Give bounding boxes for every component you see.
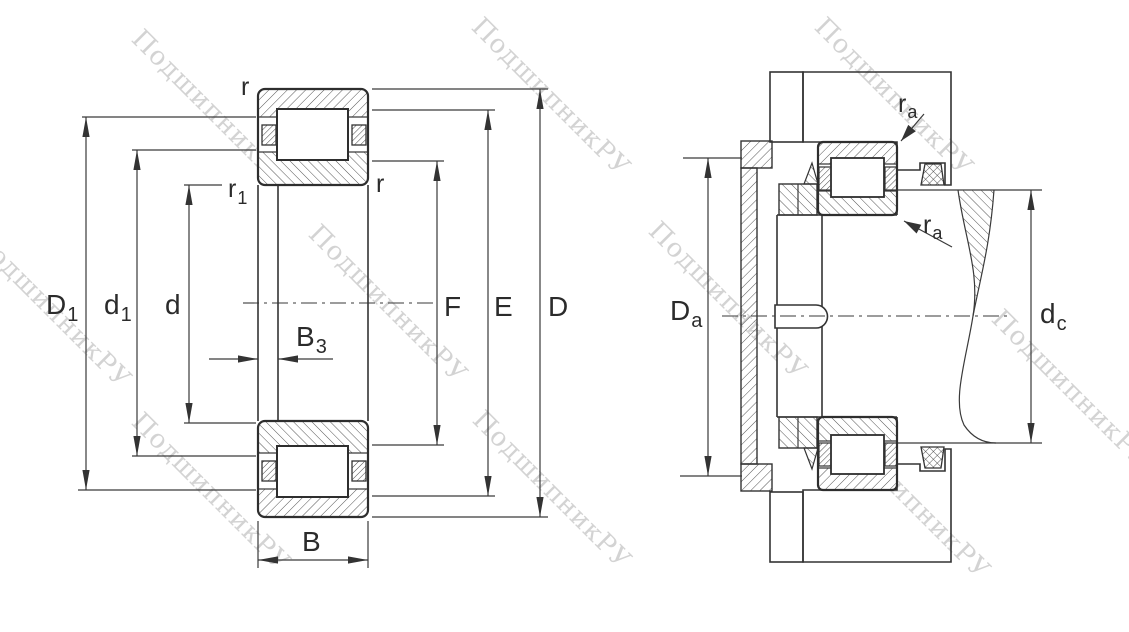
label-r1: r1 [228,175,247,208]
cover-flange-bottom [770,492,803,562]
bearing-section-top [258,89,368,185]
seal-ring-bottom [921,447,944,468]
roller [831,435,884,474]
label-d: d [165,289,181,320]
lock-washer-tab [804,163,818,184]
bearing-cross-section-view: r r1 r D1 d1 d B3 B F E D [46,73,568,568]
label-ra-mid: ra [923,211,943,243]
cage-section [819,167,831,190]
label-F: F [444,291,461,322]
roller [277,446,348,497]
label-B3: B3 [296,321,327,358]
lock-washer-tab [804,448,818,469]
abutment-spacer-bottom [779,417,818,469]
watermark-text: ПодшипникРУ [642,216,813,387]
label-Da: Da [670,295,703,332]
cover-flange-top [770,72,803,142]
cage-section [352,461,366,481]
label-d1: d1 [104,289,132,326]
label-r-top: r [241,73,249,101]
dimension-d [184,185,256,423]
bearing-technical-drawing: ПодшипникРУ ПодшипникРУ ПодшипникРУ Подш… [0,0,1129,632]
roller [831,158,884,197]
label-dc: dc [1040,298,1067,335]
cage-section [352,125,366,145]
shaft-break-section [958,190,994,316]
cage-section [885,443,897,466]
roller [277,109,348,160]
label-r-right: r [376,170,384,198]
cage-section [262,125,276,145]
bearing-section-bottom [258,421,368,517]
mounted-bearing-top [818,142,897,215]
cage-section [262,461,276,481]
watermark-text: ПодшипникРУ [466,405,637,576]
seal-ring-top [921,164,944,185]
label-D: D [548,291,568,322]
label-E: E [494,291,513,322]
label-B: B [302,526,321,557]
mounted-bearing-bottom [818,417,897,490]
cage-section [885,167,897,190]
drawing-canvas: ПодшипникРУ ПодшипникРУ ПодшипникРУ Подш… [0,0,1129,632]
watermark-text: ПодшипникРУ [465,12,636,183]
abutment-spacer-top [779,163,818,215]
cage-section [819,443,831,466]
